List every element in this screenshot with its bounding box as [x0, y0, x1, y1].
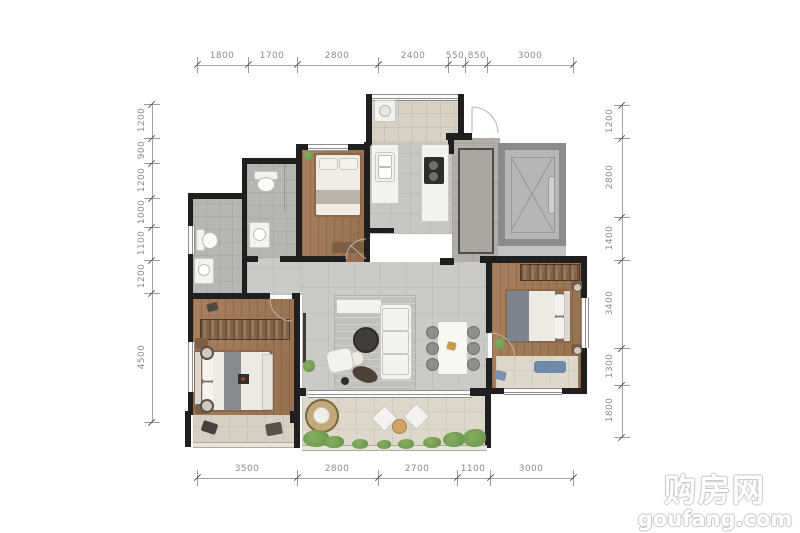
- dim-line-bottom: [197, 478, 573, 479]
- wall: [364, 142, 370, 262]
- dim-label: 1100: [453, 464, 493, 474]
- dim-label: 2800: [317, 464, 357, 474]
- dim-tick: [378, 57, 379, 73]
- dining-chair: [426, 358, 439, 371]
- bedroom3-side-window: [581, 298, 589, 348]
- sink-basin: [253, 228, 266, 241]
- bed-throw: [316, 190, 360, 204]
- wall: [280, 256, 346, 262]
- dim-line-right: [622, 105, 623, 437]
- floor-plan-screenshot: 1800 1700 2800 2400 550 850 3000 3500 28…: [0, 0, 800, 533]
- dim-tick: [197, 57, 198, 73]
- toilet-bowl: [257, 177, 275, 192]
- balcony-table: [392, 419, 407, 434]
- dim-label: 2800: [605, 155, 615, 199]
- bedroom3-wardrobe: [520, 264, 580, 281]
- dining-chair: [426, 342, 439, 355]
- table-lamp-icon: [200, 399, 214, 413]
- wall: [242, 158, 302, 164]
- dim-tick: [197, 470, 198, 486]
- sofa-cushion: [382, 354, 409, 375]
- dim-tick: [614, 348, 630, 349]
- dim-line-left: [152, 104, 153, 422]
- dim-tick: [297, 470, 298, 486]
- dim-label: 1200: [605, 99, 615, 143]
- wall: [486, 358, 492, 390]
- dim-tick: [487, 57, 488, 73]
- sofa-cushion: [382, 331, 409, 354]
- watermark-title: 购房网: [634, 473, 796, 507]
- dim-label: 550: [445, 51, 465, 61]
- coffee-table: [353, 327, 379, 353]
- wall: [242, 193, 247, 295]
- bathroom2-window: [188, 226, 195, 254]
- plant-icon: [352, 439, 368, 449]
- dim-tick: [614, 138, 630, 139]
- wall: [366, 94, 372, 146]
- dim-label: 3000: [510, 51, 550, 61]
- pillow-icon: [554, 294, 565, 316]
- wall: [480, 256, 587, 263]
- watermark-domain: goufang.com: [634, 507, 796, 531]
- washer-drum-icon: [379, 105, 391, 117]
- bench-at-bed-foot: [262, 354, 273, 410]
- dim-label: 3500: [227, 464, 267, 474]
- dim-tick: [144, 422, 160, 423]
- dim-label: 1300: [605, 344, 615, 388]
- table-lamp-icon: [573, 346, 582, 355]
- bedroom2-bench: [332, 242, 364, 253]
- media-console: [336, 299, 382, 314]
- dim-label: 3400: [605, 281, 615, 325]
- dim-label: 1700: [252, 51, 292, 61]
- dim-label: 1800: [605, 388, 615, 432]
- tray-accent: [241, 377, 245, 381]
- bedroom3-bay-window: [504, 388, 562, 395]
- dim-tick: [614, 105, 630, 106]
- hall-runner-rug: [458, 148, 494, 254]
- dim-label: 1800: [202, 51, 242, 61]
- dim-label: 4500: [137, 335, 147, 379]
- plant-icon: [443, 432, 465, 447]
- plant-icon: [304, 151, 313, 160]
- dim-label: 1400: [605, 216, 615, 260]
- dim-tick: [573, 470, 574, 486]
- wall: [185, 411, 191, 447]
- sink-basin: [198, 264, 210, 276]
- wall: [486, 263, 492, 333]
- hall-nook-floor: [247, 258, 302, 295]
- dim-label: 3000: [511, 464, 551, 474]
- wall: [294, 392, 300, 448]
- shower-glass-line: [284, 164, 285, 212]
- bedroom3-blanket: [507, 291, 529, 341]
- watermark: 购房网 goufang.com: [634, 473, 796, 531]
- pillow-icon: [554, 317, 565, 339]
- burner-icon: [429, 161, 438, 170]
- dim-line-top: [197, 65, 573, 66]
- elevator-door-slot: [548, 176, 555, 214]
- dim-label: 2700: [397, 464, 437, 474]
- wall: [188, 193, 247, 199]
- dim-tick: [248, 57, 249, 73]
- wall: [440, 258, 454, 265]
- hanging-chair-cushion: [313, 407, 330, 424]
- table-lamp-icon: [200, 346, 214, 360]
- wall: [242, 158, 247, 198]
- table-lamp-icon: [573, 283, 582, 292]
- dim-tick: [614, 260, 630, 261]
- wall: [446, 133, 472, 140]
- plant-icon: [377, 440, 391, 449]
- bay-bench: [534, 361, 566, 373]
- balcony-sliding-door: [308, 390, 472, 398]
- dim-label: 2800: [317, 51, 357, 61]
- dim-label: 2400: [393, 51, 433, 61]
- plant-icon: [303, 360, 315, 372]
- sink-bowl: [378, 155, 392, 167]
- master-wardrobe: [200, 319, 290, 340]
- burner-icon: [429, 172, 438, 181]
- pillow-icon: [339, 158, 358, 170]
- dim-tick: [614, 217, 630, 218]
- sofa-cushion: [382, 308, 409, 331]
- wall: [188, 293, 270, 299]
- dim-label: 850: [467, 51, 487, 61]
- dim-tick: [614, 385, 630, 386]
- wall: [366, 256, 370, 262]
- bedroom2-window: [308, 144, 348, 151]
- wall: [364, 228, 394, 233]
- dining-chair: [467, 342, 480, 355]
- plant-icon: [324, 436, 344, 448]
- bedroom3-duvet: [528, 291, 555, 341]
- tv-icon: [303, 313, 306, 363]
- toilet-bowl: [202, 232, 218, 249]
- dining-chair: [467, 358, 480, 371]
- floor-lamp-icon: [341, 377, 349, 385]
- dining-chair: [426, 326, 439, 339]
- plant-icon: [398, 439, 414, 449]
- wall: [242, 256, 258, 262]
- sink-bowl: [378, 167, 392, 179]
- dim-tick: [465, 57, 466, 73]
- plant-icon: [494, 338, 505, 349]
- dim-tick: [614, 437, 630, 438]
- dim-tick: [297, 57, 298, 73]
- pillow-icon: [319, 158, 338, 170]
- dim-tick: [573, 57, 574, 73]
- master-balcony-rail: [193, 442, 295, 448]
- plant-icon: [423, 437, 441, 448]
- plant-icon: [463, 429, 486, 447]
- dining-chair: [467, 326, 480, 339]
- dim-label: 1200: [137, 254, 147, 298]
- dim-tick: [378, 470, 379, 486]
